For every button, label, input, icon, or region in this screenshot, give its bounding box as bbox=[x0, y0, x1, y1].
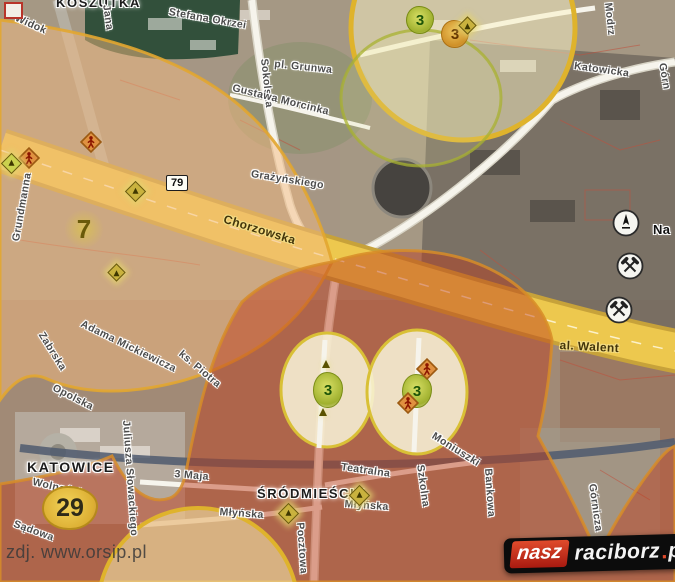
attribution-watermark: zdj. www.orsip.pl bbox=[6, 542, 147, 563]
road-shield-79: 79 bbox=[166, 175, 188, 191]
mini-arrow-marker[interactable] bbox=[322, 360, 330, 368]
district-label-katowice: KATOWICE bbox=[27, 459, 115, 475]
zone-ellipse-green bbox=[341, 30, 501, 166]
map-viewport[interactable]: KOSZUTKA KATOWICE ŚRÓDMIEŚCIE Stefana Ok… bbox=[0, 0, 675, 582]
logo-name: raciborz bbox=[574, 539, 660, 565]
site-logo: naszraciborz.pl bbox=[504, 533, 675, 573]
logo-dot: . bbox=[661, 538, 668, 564]
building-poi-icon[interactable] bbox=[4, 2, 23, 19]
district-label-koszutka: KOSZUTKA bbox=[56, 0, 141, 10]
street-label-na-partial: Na bbox=[653, 222, 670, 237]
logo-tld: pl bbox=[668, 538, 675, 562]
mini-arrow-marker[interactable] bbox=[319, 408, 327, 416]
logo-prefix: nasz bbox=[509, 540, 570, 569]
